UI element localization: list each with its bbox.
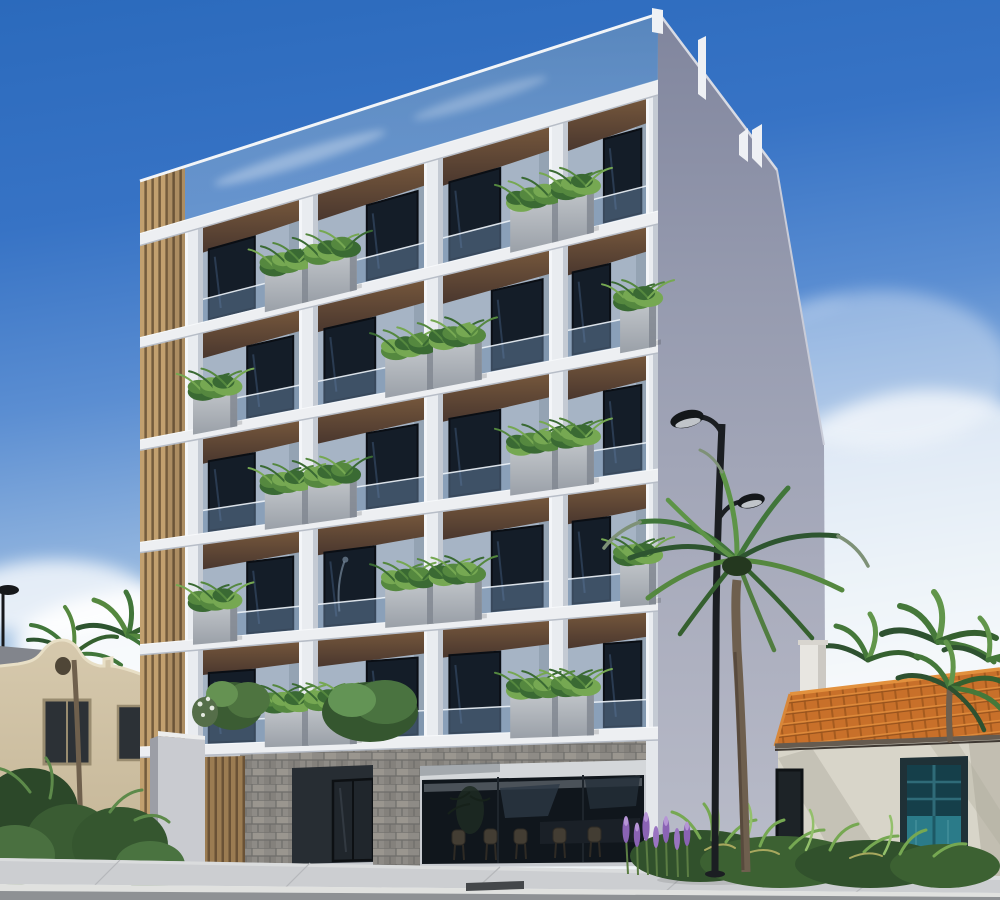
parapet-notch (698, 36, 706, 100)
architectural-render (0, 0, 1000, 900)
parapet-opening (55, 657, 71, 675)
chimney (798, 640, 828, 694)
right-house-window (777, 770, 802, 838)
storefront (420, 760, 646, 864)
stone-pier (245, 755, 292, 869)
ground-floor (185, 740, 658, 871)
entrance-door (333, 779, 373, 861)
wood-slat-gate (205, 756, 245, 866)
stone-pier (373, 753, 420, 871)
